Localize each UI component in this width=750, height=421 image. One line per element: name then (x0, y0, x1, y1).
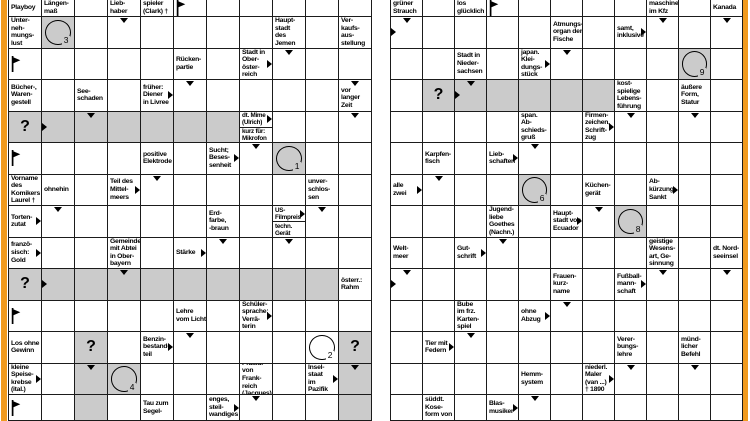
answer-cell[interactable] (42, 395, 75, 421)
answer-cell[interactable] (519, 0, 551, 17)
answer-cell[interactable] (583, 269, 615, 301)
answer-cell[interactable] (42, 49, 75, 81)
highlighted-answer-cell[interactable] (306, 269, 339, 301)
circled-answer-cell[interactable]: 3 (42, 17, 75, 49)
answer-cell[interactable] (273, 0, 306, 17)
answer-cell[interactable] (551, 112, 583, 144)
answer-cell[interactable] (174, 364, 207, 396)
answer-cell[interactable] (240, 395, 273, 421)
answer-cell[interactable] (551, 49, 583, 81)
answer-cell[interactable] (306, 17, 339, 49)
question-mark-cell[interactable]: ? (423, 80, 455, 112)
answer-cell[interactable] (42, 80, 75, 112)
clue-text: Lieb- haber (108, 0, 127, 15)
highlighted-answer-cell[interactable] (42, 112, 75, 144)
answer-cell[interactable] (711, 80, 743, 112)
answer-cell[interactable] (551, 301, 583, 333)
answer-cell[interactable] (240, 206, 273, 238)
answer-cell[interactable] (141, 301, 174, 333)
circle-number: 8 (634, 225, 642, 234)
answer-cell[interactable] (391, 112, 423, 144)
answer-cell[interactable] (423, 301, 455, 333)
answer-cell[interactable] (207, 301, 240, 333)
clue-bottom-half: kurz für: Mikrofon (240, 127, 272, 143)
answer-cell[interactable] (455, 17, 487, 49)
answer-cell[interactable] (679, 112, 711, 144)
answer-cell[interactable] (174, 143, 207, 175)
answer-cell[interactable] (9, 49, 42, 81)
clue-cell: kost- spielige Lebens- führung (615, 80, 647, 112)
answer-cell[interactable] (9, 143, 42, 175)
flag-arrow-icon (11, 150, 21, 166)
answer-cell[interactable] (647, 143, 679, 175)
answer-cell[interactable] (240, 332, 273, 364)
right-arrow-icon (36, 375, 41, 383)
answer-cell[interactable] (519, 238, 551, 270)
down-arrow-icon (252, 144, 260, 149)
answer-cell[interactable] (42, 301, 75, 333)
answer-cell[interactable] (711, 206, 743, 238)
answer-cell[interactable] (647, 49, 679, 81)
answer-cell[interactable] (141, 238, 174, 270)
answer-cell[interactable] (487, 112, 519, 144)
answer-cell[interactable] (711, 269, 743, 301)
answer-cell[interactable] (306, 206, 339, 238)
answer-cell[interactable] (273, 364, 306, 396)
answer-cell[interactable] (42, 332, 75, 364)
answer-cell[interactable] (647, 80, 679, 112)
down-arrow-icon (403, 270, 411, 275)
answer-cell[interactable] (647, 395, 679, 421)
highlighted-answer-cell[interactable] (174, 112, 207, 144)
answer-cell[interactable] (42, 143, 75, 175)
clue-cell: Ex-Präsid. von Frank- reich (Jacques) † (240, 364, 273, 396)
answer-cell[interactable] (174, 17, 207, 49)
answer-cell[interactable] (306, 0, 339, 17)
answer-cell[interactable] (711, 364, 743, 396)
answer-cell[interactable] (487, 0, 519, 17)
clue-cell: Ver- kaufs- aus- stellung (339, 17, 372, 49)
clue-text: dt. Nord- seeinsel (711, 245, 739, 260)
highlighted-answer-cell[interactable] (75, 269, 108, 301)
answer-cell[interactable] (551, 175, 583, 207)
answer-cell[interactable] (391, 301, 423, 333)
answer-cell[interactable] (647, 332, 679, 364)
answer-cell[interactable] (391, 395, 423, 421)
answer-cell[interactable] (339, 49, 372, 81)
answer-cell[interactable] (174, 0, 207, 17)
clue-text: Torten- zutat (9, 214, 32, 229)
answer-cell[interactable] (679, 206, 711, 238)
answer-cell[interactable] (551, 395, 583, 421)
answer-cell[interactable] (273, 301, 306, 333)
clue-text: kost- spielige Lebens- führung (615, 80, 641, 110)
answer-cell[interactable] (391, 49, 423, 81)
answer-cell[interactable] (240, 143, 273, 175)
answer-cell[interactable] (711, 175, 743, 207)
circled-answer-cell[interactable]: 8 (615, 206, 647, 238)
clue-cell: früher: Diener in Livree (141, 80, 174, 112)
clue-text: Vorname des Komikers Laurel † (9, 175, 40, 205)
answer-cell[interactable] (679, 301, 711, 333)
answer-cell[interactable] (487, 17, 519, 49)
down-arrow-icon (351, 365, 359, 370)
answer-cell[interactable] (306, 112, 339, 144)
answer-cell[interactable] (391, 364, 423, 396)
answer-cell[interactable] (108, 395, 141, 421)
answer-cell[interactable] (108, 80, 141, 112)
answer-cell[interactable] (391, 206, 423, 238)
answer-cell[interactable] (455, 395, 487, 421)
answer-cell[interactable] (615, 175, 647, 207)
answer-cell[interactable] (174, 80, 207, 112)
answer-cell[interactable] (207, 80, 240, 112)
answer-cell[interactable] (339, 301, 372, 333)
clue-cell: Haupt- stadt des Jemen (273, 17, 306, 49)
highlighted-answer-cell[interactable] (455, 80, 487, 112)
answer-cell[interactable] (615, 238, 647, 270)
answer-cell[interactable] (455, 364, 487, 396)
answer-cell[interactable] (391, 332, 423, 364)
highlighted-answer-cell[interactable] (487, 80, 519, 112)
answer-cell[interactable] (423, 206, 455, 238)
answer-cell[interactable] (75, 175, 108, 207)
right-arrow-icon (201, 249, 206, 257)
answer-cell[interactable] (487, 364, 519, 396)
answer-cell[interactable] (141, 175, 174, 207)
answer-cell[interactable] (306, 395, 339, 421)
answer-cell[interactable] (519, 206, 551, 238)
answer-cell[interactable] (423, 0, 455, 17)
answer-cell[interactable] (487, 175, 519, 207)
clue-cell: Hemm- system (519, 364, 551, 396)
answer-cell[interactable] (207, 238, 240, 270)
answer-cell[interactable] (75, 143, 108, 175)
answer-cell[interactable] (647, 364, 679, 396)
right-arrow-icon (641, 28, 646, 36)
answer-cell[interactable] (487, 238, 519, 270)
answer-cell[interactable] (455, 206, 487, 238)
answer-cell[interactable] (423, 364, 455, 396)
right-arrow-icon (455, 91, 460, 99)
highlighted-answer-cell[interactable] (339, 395, 372, 421)
answer-cell[interactable] (583, 0, 615, 17)
answer-cell[interactable] (455, 112, 487, 144)
answer-cell[interactable] (391, 269, 423, 301)
circled-answer-cell[interactable]: 6 (519, 175, 551, 207)
highlighted-answer-cell[interactable] (108, 112, 141, 144)
down-arrow-icon (531, 396, 539, 401)
answer-cell[interactable] (423, 49, 455, 81)
clue-text: alle zwei (391, 182, 406, 197)
answer-cell[interactable] (207, 49, 240, 81)
answer-cell[interactable] (679, 17, 711, 49)
answer-cell[interactable] (273, 175, 306, 207)
answer-cell[interactable] (306, 301, 339, 333)
down-arrow-icon (531, 144, 539, 149)
answer-cell[interactable] (679, 364, 711, 396)
answer-cell[interactable] (455, 175, 487, 207)
answer-cell[interactable] (174, 395, 207, 421)
answer-cell[interactable] (647, 301, 679, 333)
clue-cell: dt. Nord- seeinsel (711, 238, 743, 270)
answer-cell[interactable] (615, 0, 647, 17)
clue-cell: alle zwei (391, 175, 423, 207)
highlighted-answer-cell[interactable] (240, 269, 273, 301)
answer-cell[interactable] (487, 332, 519, 364)
highlighted-answer-cell[interactable] (174, 269, 207, 301)
clue-text: Blas- musiker (487, 400, 513, 415)
answer-cell[interactable] (455, 332, 487, 364)
question-mark-cell[interactable]: ? (9, 112, 42, 144)
highlighted-answer-cell[interactable] (551, 80, 583, 112)
answer-cell[interactable] (423, 238, 455, 270)
highlighted-answer-cell[interactable] (75, 364, 108, 396)
answer-cell[interactable] (108, 17, 141, 49)
circled-answer-cell[interactable]: 9 (679, 49, 711, 81)
highlighted-answer-cell[interactable] (108, 269, 141, 301)
answer-cell[interactable] (487, 49, 519, 81)
answer-cell[interactable] (306, 49, 339, 81)
answer-cell[interactable] (679, 238, 711, 270)
answer-cell[interactable] (711, 112, 743, 144)
answer-cell[interactable] (711, 395, 743, 421)
answer-cell[interactable] (711, 49, 743, 81)
highlighted-answer-cell[interactable] (519, 80, 551, 112)
answer-cell[interactable] (711, 143, 743, 175)
clue-text: Längen- maß (42, 0, 69, 15)
answer-cell[interactable] (108, 49, 141, 81)
clue-text: ohnehin (42, 186, 69, 194)
highlighted-answer-cell[interactable] (207, 269, 240, 301)
clue-cell: Insel- staat im Pazifik (306, 364, 339, 396)
answer-cell[interactable] (551, 364, 583, 396)
answer-cell[interactable] (615, 301, 647, 333)
answer-cell[interactable] (108, 301, 141, 333)
answer-cell[interactable] (9, 395, 42, 421)
clue-cell: Playboy (9, 0, 42, 17)
question-mark: ? (86, 339, 96, 355)
answer-cell[interactable] (423, 112, 455, 144)
clue-cell: enges, steil- wandiges (207, 395, 240, 421)
answer-cell[interactable] (391, 17, 423, 49)
right-arrow-icon (513, 404, 518, 412)
answer-cell[interactable] (615, 364, 647, 396)
answer-cell[interactable] (141, 49, 174, 81)
answer-cell[interactable] (108, 143, 141, 175)
answer-cell[interactable] (679, 395, 711, 421)
answer-cell[interactable] (679, 269, 711, 301)
answer-cell[interactable] (75, 49, 108, 81)
answer-cell[interactable] (207, 364, 240, 396)
answer-cell[interactable] (42, 206, 75, 238)
question-mark-cell[interactable]: ? (339, 332, 372, 364)
answer-cell[interactable] (273, 49, 306, 81)
right-arrow-icon (36, 217, 41, 225)
answer-cell[interactable] (647, 17, 679, 49)
highlighted-answer-cell[interactable] (141, 269, 174, 301)
clue-text: Bücher-, Waren- gestell (9, 84, 37, 107)
answer-cell[interactable] (75, 17, 108, 49)
answer-cell[interactable] (273, 80, 306, 112)
answer-cell[interactable] (306, 143, 339, 175)
down-arrow-icon (186, 81, 194, 86)
answer-cell[interactable] (679, 143, 711, 175)
answer-cell[interactable] (75, 206, 108, 238)
right-arrow-icon (267, 115, 272, 123)
answer-cell[interactable] (583, 395, 615, 421)
answer-cell[interactable] (583, 332, 615, 364)
answer-cell[interactable] (42, 364, 75, 396)
right-arrow-icon (609, 123, 614, 131)
answer-cell[interactable] (455, 269, 487, 301)
answer-cell[interactable] (240, 80, 273, 112)
clue-text: techn. Gerät (273, 223, 292, 237)
answer-cell[interactable] (207, 17, 240, 49)
highlighted-answer-cell[interactable] (141, 112, 174, 144)
answer-cell[interactable] (273, 112, 306, 144)
highlighted-answer-cell[interactable] (42, 269, 75, 301)
answer-cell[interactable] (273, 395, 306, 421)
answer-cell[interactable] (273, 238, 306, 270)
clue-cell: Erd- farbe, -braun (207, 206, 240, 238)
highlighted-answer-cell[interactable] (339, 364, 372, 396)
clue-text: span. Ab- schieds- gruß (519, 112, 547, 142)
clue-text: japan. Klei- dungs- stück (519, 49, 542, 79)
right-arrow-icon (609, 375, 614, 383)
answer-cell[interactable] (615, 143, 647, 175)
answer-cell[interactable] (711, 332, 743, 364)
down-arrow-icon (627, 113, 635, 118)
answer-cell[interactable] (391, 80, 423, 112)
answer-cell[interactable] (273, 332, 306, 364)
clue-text: Küchen- gerät (583, 182, 610, 197)
answer-cell[interactable] (339, 238, 372, 270)
answer-cell[interactable] (339, 206, 372, 238)
answer-cell[interactable] (75, 238, 108, 270)
circle-number: 3 (62, 36, 70, 45)
answer-cell[interactable] (711, 301, 743, 333)
circled-answer-cell[interactable]: 4 (108, 364, 141, 396)
answer-cell[interactable] (391, 143, 423, 175)
answer-cell[interactable] (207, 332, 240, 364)
answer-cell[interactable] (339, 175, 372, 207)
answer-cell[interactable] (647, 206, 679, 238)
answer-cell[interactable] (519, 17, 551, 49)
clue-cell-split: US- Filmpreistechn. Gerät (273, 206, 306, 238)
clue-bottom-half: techn. Gerät (273, 221, 305, 237)
answer-cell[interactable] (583, 143, 615, 175)
answer-cell[interactable] (339, 143, 372, 175)
answer-cell[interactable] (9, 301, 42, 333)
answer-cell[interactable] (75, 0, 108, 17)
clue-cell: münd- licher Befehl (679, 332, 711, 364)
answer-cell[interactable] (519, 395, 551, 421)
down-arrow-icon (54, 207, 62, 212)
answer-cell[interactable] (551, 143, 583, 175)
answer-cell[interactable] (519, 269, 551, 301)
circled-answer-cell[interactable]: 2 (306, 332, 339, 364)
highlighted-answer-cell[interactable] (583, 80, 615, 112)
answer-cell[interactable] (679, 175, 711, 207)
answer-cell[interactable] (615, 395, 647, 421)
answer-cell[interactable] (174, 206, 207, 238)
answer-cell[interactable] (583, 238, 615, 270)
answer-cell[interactable] (551, 332, 583, 364)
answer-cell[interactable] (711, 17, 743, 49)
highlighted-answer-cell[interactable] (273, 269, 306, 301)
answer-cell[interactable] (306, 238, 339, 270)
answer-cell[interactable] (42, 238, 75, 270)
answer-cell[interactable] (487, 301, 519, 333)
clue-cell: Blas- musiker (487, 395, 519, 421)
answer-cell[interactable] (487, 269, 519, 301)
answer-cell[interactable] (423, 175, 455, 207)
clue-cell: maschine im Kfz (647, 0, 679, 17)
answer-cell[interactable] (141, 17, 174, 49)
answer-cell[interactable] (240, 17, 273, 49)
answer-cell[interactable] (339, 0, 372, 17)
clue-text: kurz für: Mikrofon (240, 128, 267, 142)
answer-cell[interactable] (75, 301, 108, 333)
answer-cell[interactable] (647, 269, 679, 301)
clue-text: Kanada (711, 4, 736, 12)
answer-cell[interactable] (615, 49, 647, 81)
clue-cell: Vorname des Komikers Laurel † (9, 175, 42, 207)
answer-cell[interactable] (141, 206, 174, 238)
clue-cell: Schüler- sprache: Verrä- terin (240, 301, 273, 333)
clue-cell: süddt. Kose- form von (423, 395, 455, 421)
answer-cell[interactable] (455, 143, 487, 175)
highlighted-answer-cell[interactable] (207, 112, 240, 144)
answer-cell[interactable] (207, 175, 240, 207)
answer-cell[interactable] (339, 112, 372, 144)
answer-cell[interactable] (240, 175, 273, 207)
answer-cell[interactable] (423, 17, 455, 49)
question-mark-cell[interactable]: ? (75, 332, 108, 364)
highlighted-answer-cell[interactable] (75, 112, 108, 144)
answer-cell[interactable] (583, 17, 615, 49)
answer-cell[interactable] (647, 112, 679, 144)
answer-cell[interactable] (306, 80, 339, 112)
solution-circle-icon: 9 (682, 51, 707, 77)
circled-answer-cell[interactable]: 1 (273, 143, 306, 175)
answer-cell[interactable] (551, 238, 583, 270)
highlighted-answer-cell[interactable] (75, 395, 108, 421)
answer-cell[interactable] (240, 238, 273, 270)
answer-cell[interactable] (583, 301, 615, 333)
question-mark-cell[interactable]: ? (9, 269, 42, 301)
clue-cell: niederl. Maler (van ...) † 1890 (583, 364, 615, 396)
answer-cell[interactable] (583, 206, 615, 238)
answer-cell[interactable] (207, 0, 240, 17)
answer-cell[interactable] (108, 206, 141, 238)
solution-circle-icon: 6 (522, 177, 547, 203)
answer-cell[interactable] (108, 332, 141, 364)
answer-cell[interactable] (551, 0, 583, 17)
answer-cell[interactable] (519, 143, 551, 175)
answer-cell[interactable] (174, 332, 207, 364)
answer-cell[interactable] (519, 332, 551, 364)
answer-cell[interactable] (583, 49, 615, 81)
answer-cell[interactable] (174, 175, 207, 207)
answer-cell[interactable] (423, 269, 455, 301)
answer-cell[interactable] (240, 0, 273, 17)
answer-cell[interactable] (679, 0, 711, 17)
answer-cell[interactable] (141, 364, 174, 396)
right-arrow-icon (481, 249, 486, 257)
answer-cell[interactable] (615, 112, 647, 144)
